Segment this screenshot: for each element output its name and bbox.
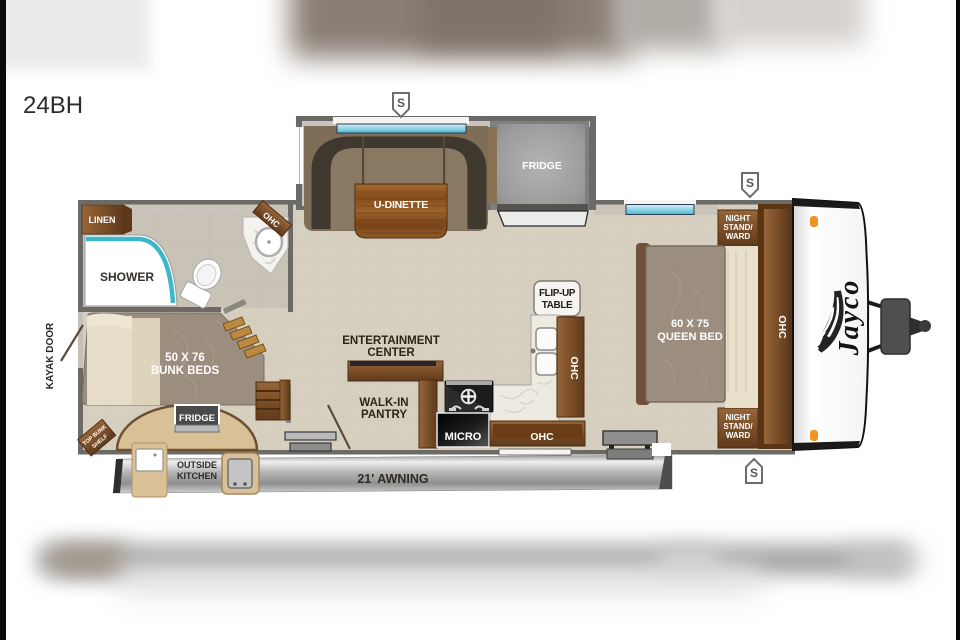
svg-text:MICRO: MICRO <box>445 431 482 443</box>
svg-text:U-DINETTE: U-DINETTE <box>374 199 428 211</box>
svg-text:ENTERTAINMENT: ENTERTAINMENT <box>342 335 440 347</box>
svg-text:S: S <box>750 466 758 480</box>
svg-text:BUNK BEDS: BUNK BEDS <box>151 365 220 377</box>
svg-text:WARD: WARD <box>726 431 751 440</box>
svg-text:TABLE: TABLE <box>542 300 573 311</box>
svg-text:OHC: OHC <box>776 315 788 339</box>
svg-text:60 X 75: 60 X 75 <box>671 318 709 330</box>
svg-text:50 X 76: 50 X 76 <box>165 352 205 364</box>
svg-text:NIGHT: NIGHT <box>726 214 751 223</box>
svg-text:OHC: OHC <box>530 431 554 443</box>
svg-text:KAYAK DOOR: KAYAK DOOR <box>45 322 56 389</box>
svg-text:STAND/: STAND/ <box>723 422 753 431</box>
svg-text:CENTER: CENTER <box>367 347 415 359</box>
svg-text:OUTSIDE: OUTSIDE <box>177 460 217 470</box>
svg-text:STAND/: STAND/ <box>723 223 753 232</box>
svg-text:LINEN: LINEN <box>89 215 116 225</box>
svg-text:PANTRY: PANTRY <box>361 409 407 421</box>
svg-text:24BH: 24BH <box>23 92 83 119</box>
svg-text:21' AWNING: 21' AWNING <box>357 472 428 486</box>
svg-text:FRIDGE: FRIDGE <box>179 413 215 424</box>
svg-text:NIGHT: NIGHT <box>726 413 751 422</box>
svg-text:SHOWER: SHOWER <box>100 270 154 284</box>
svg-text:S: S <box>397 96 405 110</box>
svg-text:FLIP-UP: FLIP-UP <box>539 288 576 299</box>
svg-text:OHC: OHC <box>568 356 580 380</box>
svg-text:S: S <box>746 176 754 190</box>
svg-text:QUEEN BED: QUEEN BED <box>657 331 722 343</box>
svg-text:WARD: WARD <box>726 232 751 241</box>
svg-text:FRIDGE: FRIDGE <box>522 160 562 172</box>
svg-text:WALK-IN: WALK-IN <box>359 397 408 409</box>
svg-text:KITCHEN: KITCHEN <box>177 471 217 481</box>
